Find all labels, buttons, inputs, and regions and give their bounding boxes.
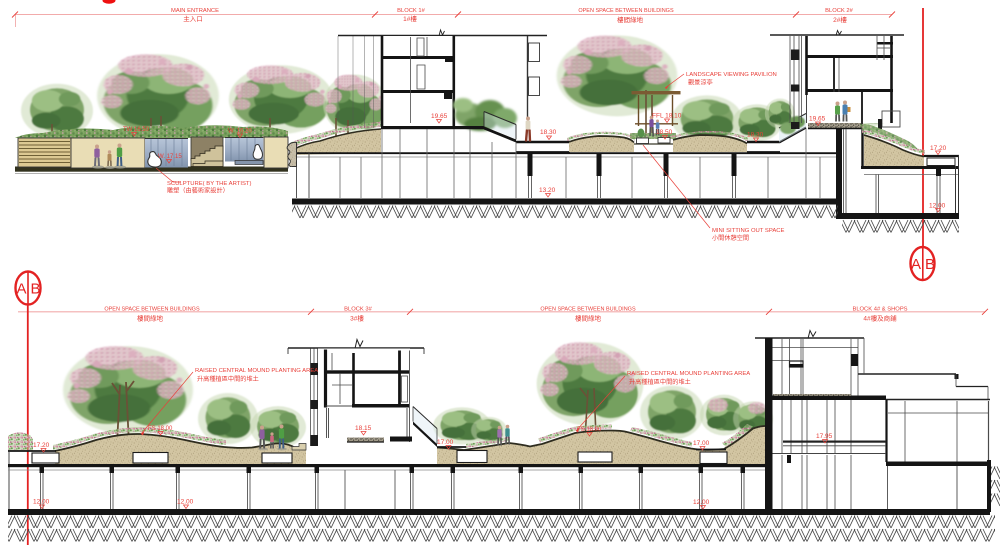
svg-text:小間休憩空間: 小間休憩空間: [712, 234, 749, 242]
svg-text:17.20: 17.20: [33, 442, 50, 449]
svg-text:OPEN SPACE BETWEEN BUILDINGS: OPEN SPACE BETWEEN BUILDINGS: [104, 307, 200, 313]
svg-text:2#樓: 2#樓: [833, 15, 847, 24]
svg-text:12.00: 12.00: [33, 499, 50, 506]
svg-text:19.65: 19.65: [809, 116, 826, 123]
svg-text:17.95: 17.95: [816, 433, 833, 440]
svg-text:RAISED CENTRAL MOUND PLANTING: RAISED CENTRAL MOUND PLANTING AREA: [195, 368, 318, 374]
svg-text:A: A: [911, 256, 921, 273]
svg-text:12.00: 12.00: [693, 499, 710, 506]
svg-text:13.20: 13.20: [539, 187, 556, 194]
svg-text:FS 18.00: FS 18.00: [577, 427, 602, 433]
svg-text:FS 18.00: FS 18.00: [148, 426, 173, 432]
svg-text:18.50: 18.50: [656, 129, 673, 136]
svg-text:雕塑（由藝術家設計）: 雕塑（由藝術家設計）: [167, 187, 229, 195]
svg-text:升高種植區中間的堆土: 升高種植區中間的堆土: [629, 378, 691, 386]
svg-text:TW 16.50: TW 16.50: [123, 127, 150, 133]
svg-text:LANDSCAPE VIEWING PAVILION: LANDSCAPE VIEWING PAVILION: [686, 72, 777, 78]
svg-text:SCULPTURE( BY THE ARTIST): SCULPTURE( BY THE ARTIST): [167, 181, 251, 187]
svg-text:19.65: 19.65: [431, 113, 448, 120]
svg-text:W. 16.20: W. 16.20: [228, 129, 252, 135]
svg-text:17.00: 17.00: [437, 439, 454, 446]
svg-text:樓間綠地: 樓間綠地: [137, 314, 164, 323]
svg-text:B: B: [30, 281, 40, 298]
svg-text:MINI SITTING OUT SPACE: MINI SITTING OUT SPACE: [712, 228, 785, 234]
svg-text:樓間綠地: 樓間綠地: [575, 314, 602, 323]
svg-text:4#樓及商鋪: 4#樓及商鋪: [863, 314, 897, 323]
svg-text:18.30: 18.30: [747, 132, 764, 139]
svg-text:3#樓: 3#樓: [350, 314, 364, 323]
svg-text:1#樓: 1#樓: [403, 14, 417, 23]
svg-text:RAISED CENTRAL MOUND PLANTING: RAISED CENTRAL MOUND PLANTING AREA: [627, 371, 750, 377]
svg-text:主入口: 主入口: [183, 14, 203, 23]
svg-text:BLOCK 2#: BLOCK 2#: [825, 8, 853, 14]
svg-text:17.00: 17.00: [693, 440, 710, 447]
svg-text:OPEN SPACE BETWEEN BUILDINGS: OPEN SPACE BETWEEN BUILDINGS: [540, 307, 636, 313]
svg-text:18.30: 18.30: [540, 129, 557, 136]
svg-text:FFL 18.10: FFL 18.10: [652, 113, 682, 120]
svg-text:OPEN SPACE BETWEEN BUILDINGS: OPEN SPACE BETWEEN BUILDINGS: [578, 8, 674, 14]
svg-text:A: A: [16, 281, 26, 298]
svg-text:MAIN ENTRANCE: MAIN ENTRANCE: [171, 8, 219, 14]
svg-text:BLOCK 4# & SHOPS: BLOCK 4# & SHOPS: [852, 307, 907, 313]
svg-text:升高種植區中間的堆土: 升高種植區中間的堆土: [197, 375, 259, 383]
svg-text:樓間綠地: 樓間綠地: [617, 15, 644, 24]
svg-text:BLOCK 3#: BLOCK 3#: [344, 307, 372, 313]
svg-text:觀景涼亭: 觀景涼亭: [688, 79, 713, 87]
svg-text:12.00: 12.00: [177, 499, 194, 506]
svg-text:18.15: 18.15: [355, 425, 372, 432]
svg-text:B: B: [925, 256, 935, 273]
svg-text:BLOCK 1#: BLOCK 1#: [397, 8, 425, 14]
svg-text:W. 17.15: W. 17.15: [158, 154, 182, 160]
